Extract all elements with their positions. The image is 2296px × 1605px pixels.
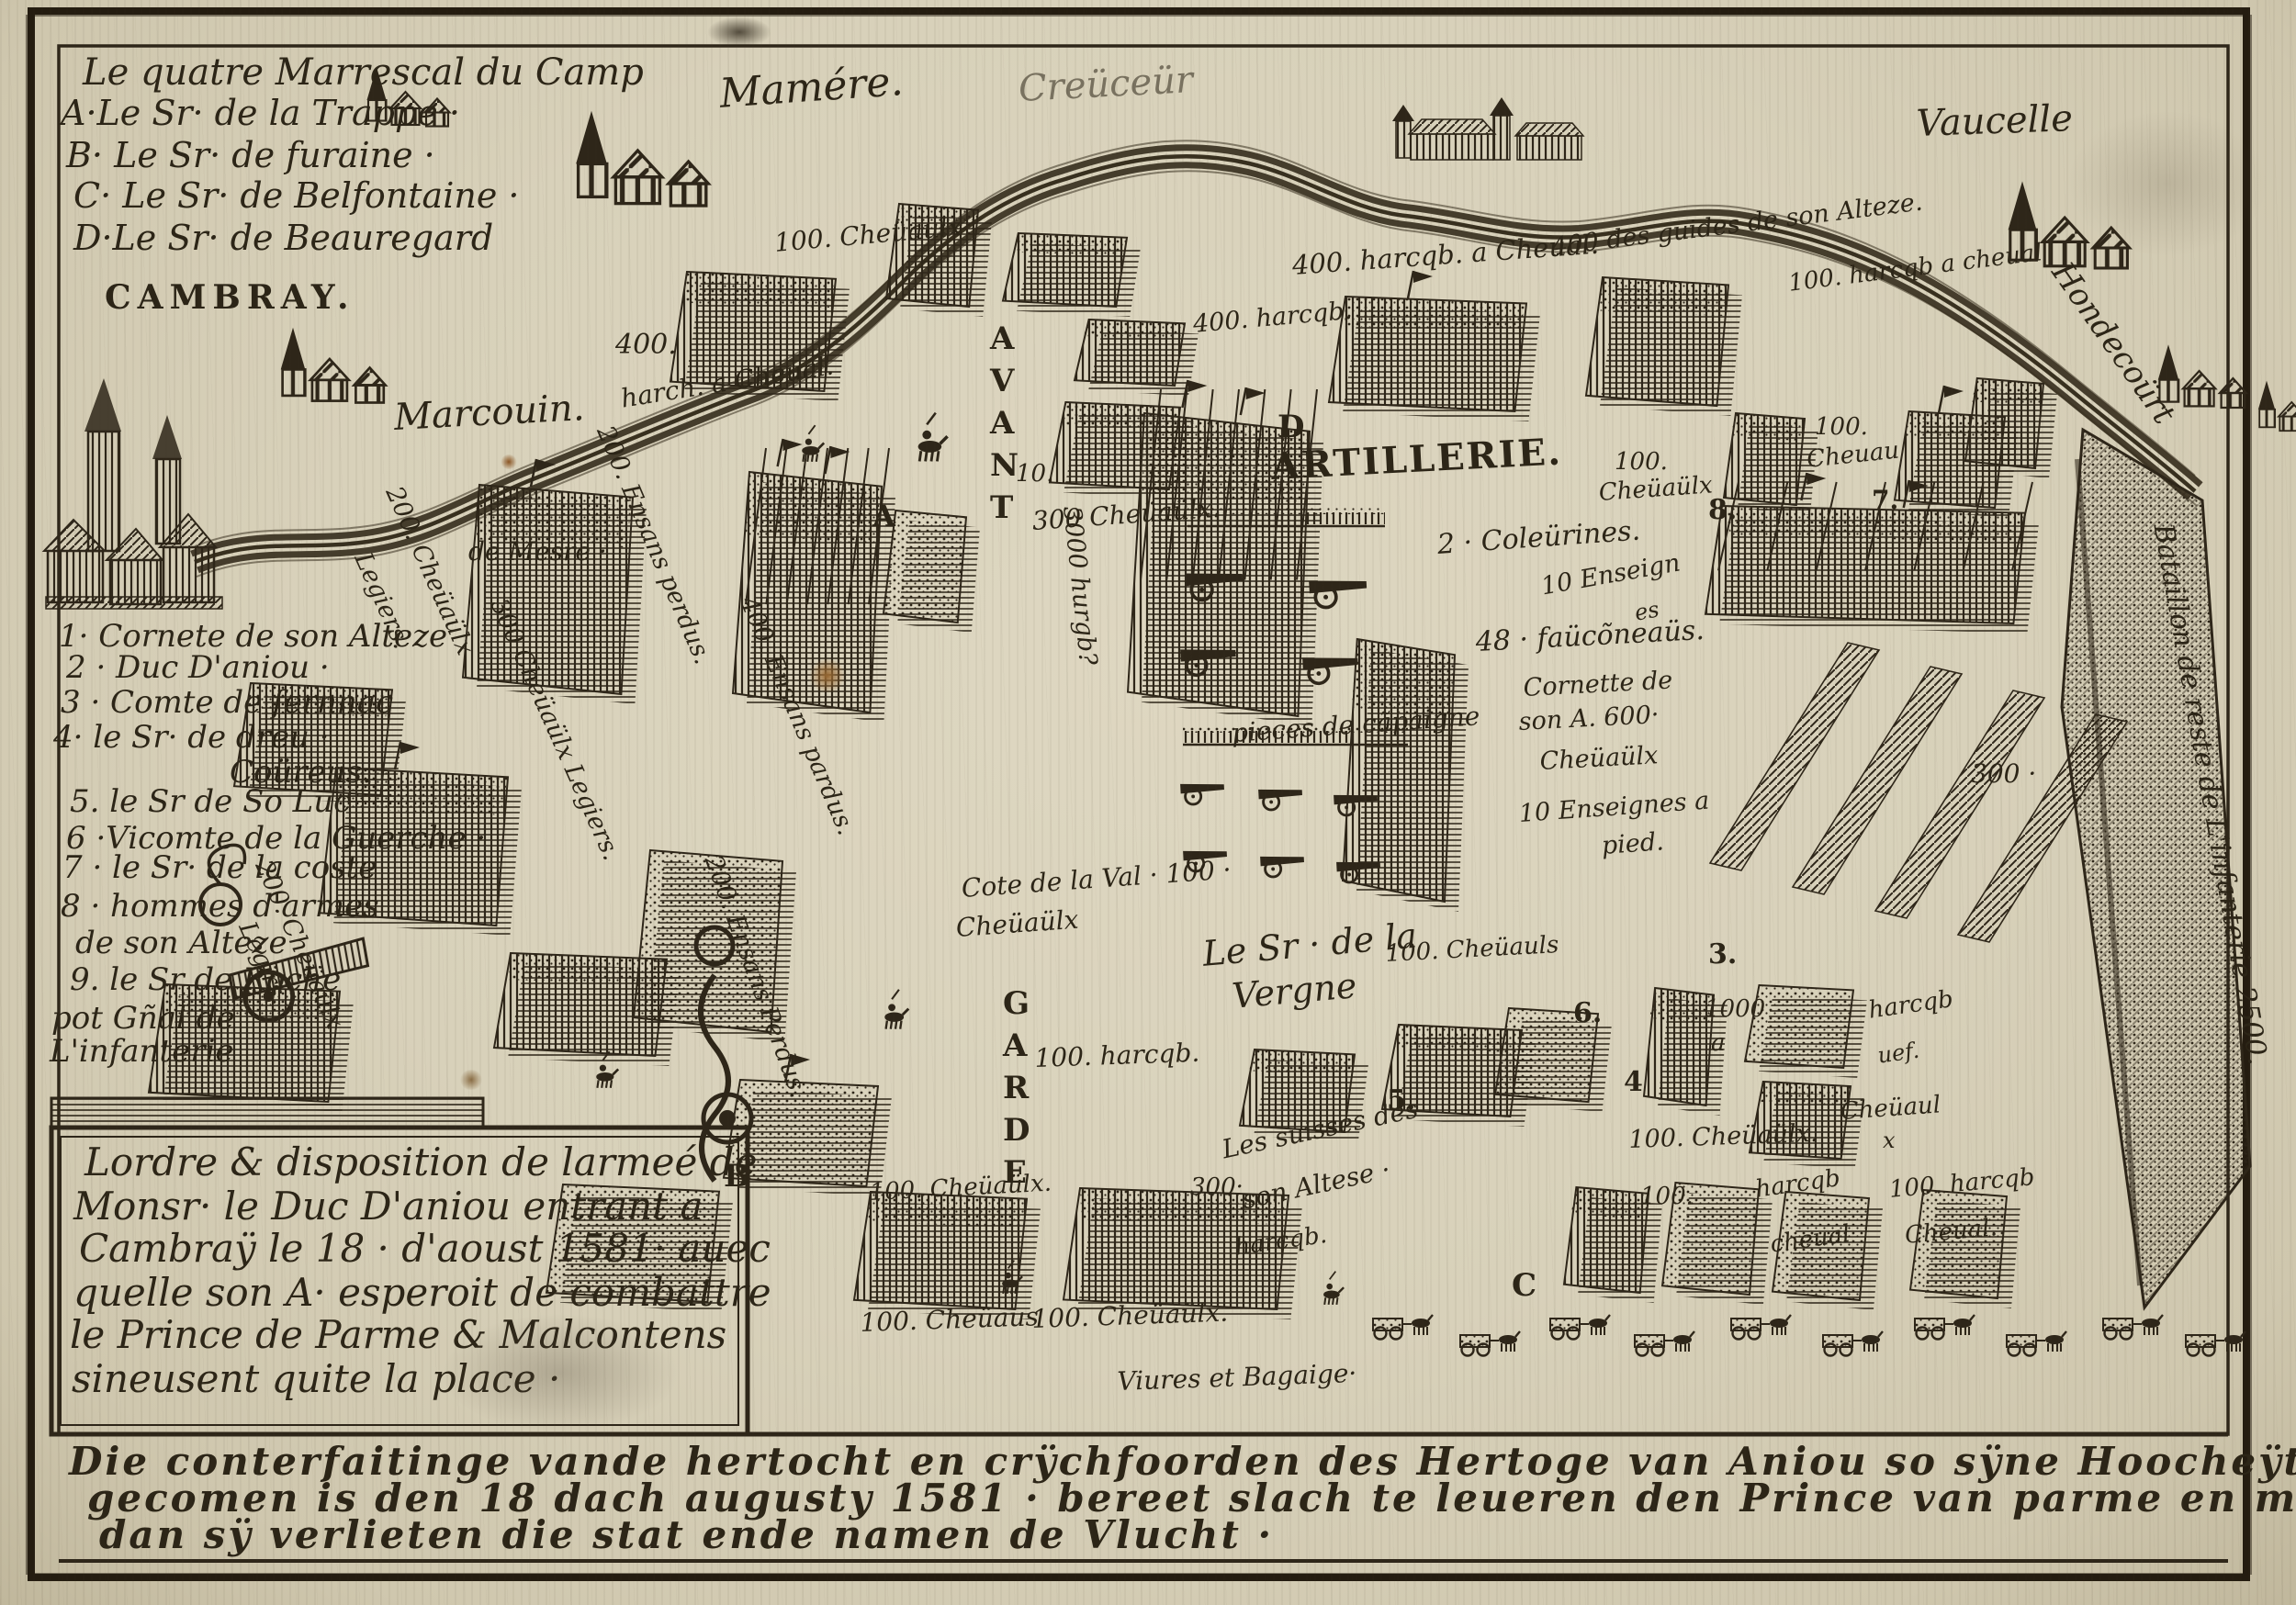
caption-line: dan sÿ verlieten die stat ende namen de … <box>99 1515 1274 1555</box>
bottom-caption: Die conterfaitinge vande hertocht en crÿ… <box>0 0 2296 1605</box>
map-sheet: CAMBRAY.Mamére.CreüceürVaucelleHondecoür… <box>0 0 2296 1605</box>
